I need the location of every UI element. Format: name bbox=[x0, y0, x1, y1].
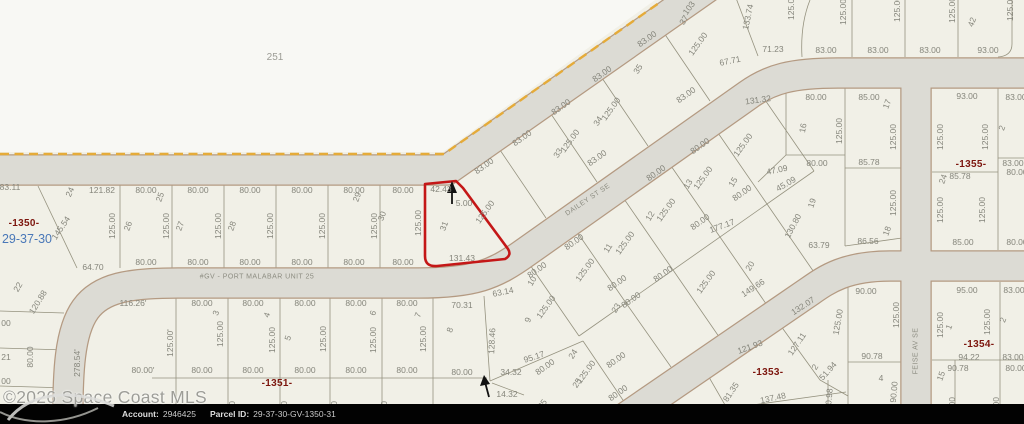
lot-number-label: 7 bbox=[413, 311, 423, 318]
dimension-label: 83.00 bbox=[1002, 353, 1023, 362]
dimension-label: 80.00 bbox=[135, 186, 156, 195]
dimension-label: 125.00 bbox=[889, 190, 898, 216]
dimension-label: 83.00 bbox=[1003, 286, 1024, 295]
dimension-label: 125.00 bbox=[732, 132, 754, 158]
dimension-label: 177.17 bbox=[708, 218, 735, 235]
lot-number-label: 24 bbox=[937, 173, 948, 185]
dimension-label: 127.11 bbox=[786, 331, 807, 357]
lot-number-label: 16 bbox=[798, 123, 808, 134]
dimension-label: 71.23 bbox=[762, 45, 783, 54]
dimension-label: 125.00 bbox=[981, 124, 990, 150]
dimension-label: 80.00 bbox=[563, 232, 585, 251]
dimension-label: 80.00 bbox=[291, 258, 312, 267]
dimension-label: 125.00 bbox=[839, 0, 848, 25]
dimension-label: 80.00 bbox=[689, 136, 711, 155]
lot-number-label: 27 bbox=[174, 220, 185, 232]
dimension-label: 80.00' bbox=[132, 366, 155, 375]
dimension-label: 85.00 bbox=[952, 238, 973, 247]
dimension-label: 80.00 bbox=[26, 346, 35, 367]
dimension-label: 67.71 bbox=[719, 55, 742, 68]
dimension-label: 83.00 bbox=[675, 85, 697, 104]
dimension-label: 80.00 bbox=[620, 290, 642, 309]
dimension-label: 83.11 bbox=[0, 183, 20, 192]
dimension-label: 80.00 bbox=[187, 258, 208, 267]
lot-number-label: 31 bbox=[438, 220, 449, 232]
dimension-label: 125.00 bbox=[832, 308, 845, 335]
lot-number-label: 24 bbox=[567, 348, 579, 361]
dimension-label: 278.54' bbox=[73, 349, 82, 377]
plat-map-viewer: 25183.11-1350-29-37-3024121.82145.54125.… bbox=[0, 0, 1024, 424]
dimension-label: 125.00 bbox=[948, 0, 957, 23]
dimension-label: 63.14 bbox=[492, 286, 515, 299]
area-label: 251 bbox=[267, 53, 284, 63]
dimension-label: 125.00 bbox=[474, 199, 496, 225]
dimension-label: 80.00 bbox=[242, 299, 263, 308]
parcel-id-value: 29-37-30-GV-1350-31 bbox=[253, 409, 336, 419]
dimension-label: 63.79 bbox=[808, 241, 829, 250]
lot-number-label: 4 bbox=[262, 311, 272, 318]
lot-number-label: 18 bbox=[881, 225, 892, 237]
dimension-label: 83.00 bbox=[867, 46, 888, 55]
dimension-label: 45.09 bbox=[775, 175, 798, 193]
lot-number-label: 4 bbox=[879, 374, 884, 383]
dimension-label: 125.00 bbox=[614, 230, 636, 256]
dimension-label: 80.00 bbox=[294, 299, 315, 308]
lot-number-label: 25 bbox=[154, 191, 165, 203]
lot-number-label: 2 bbox=[998, 316, 1008, 323]
dimension-label: 80.00 bbox=[396, 299, 417, 308]
dimension-label: 125.00 bbox=[414, 210, 423, 236]
dimension-label: 132.07 bbox=[790, 295, 816, 316]
lot-number-label: 15 bbox=[727, 176, 739, 189]
dimension-label: 80.00 bbox=[606, 273, 628, 292]
dimension-label: 90.78 bbox=[947, 364, 968, 373]
dimension-label: 83.00 bbox=[815, 46, 836, 55]
dimension-label: 125.00 bbox=[978, 197, 987, 223]
dimension-label: 90.78 bbox=[861, 352, 882, 361]
map-labels-layer: 25183.11-1350-29-37-3024121.82145.54125.… bbox=[0, 0, 1024, 424]
dimension-label: 131.43 bbox=[449, 254, 475, 263]
lot-number-label: 2 bbox=[810, 363, 820, 372]
dimension-label: 51.94 bbox=[818, 360, 839, 382]
dimension-label: 137.48 bbox=[759, 391, 786, 405]
lot-number-label: 15 bbox=[935, 370, 946, 382]
lot-number-label: 26 bbox=[122, 220, 133, 232]
dimension-label: 125.00 bbox=[268, 327, 277, 353]
dimension-label: 125.00 bbox=[835, 118, 844, 144]
dimension-label: 93.00 bbox=[956, 92, 977, 101]
dimension-label: 125.00 bbox=[787, 0, 796, 20]
dimension-label: 90.00 bbox=[889, 381, 899, 403]
dimension-label: 125.00 bbox=[319, 326, 328, 352]
dimension-label: 125.00 bbox=[574, 257, 596, 283]
dimension-label: 85.00 bbox=[858, 93, 879, 102]
lot-number-label: 11 bbox=[602, 242, 614, 254]
street-name-label: DAILEY ST SE bbox=[564, 182, 611, 217]
dimension-label: 125.00 bbox=[214, 213, 223, 239]
lot-number-label: 35 bbox=[632, 63, 644, 76]
dimension-label: 47.09 bbox=[766, 164, 789, 177]
lot-number-label: 5 bbox=[283, 334, 293, 341]
dimension-label: 80.00 bbox=[652, 264, 674, 283]
dimension-label: 80.00 bbox=[242, 366, 263, 375]
dimension-label: 85.78 bbox=[858, 158, 879, 167]
lot-number-label: 17 bbox=[881, 98, 892, 110]
lot-number-label: 9 bbox=[523, 316, 533, 323]
dimension-label: 83.00 bbox=[586, 148, 608, 167]
dimension-label: 80.00 bbox=[605, 350, 627, 369]
dimension-label: 83.00 bbox=[511, 128, 533, 147]
dimension-label: 149.66 bbox=[740, 277, 766, 298]
dimension-label: 125.00 bbox=[893, 0, 902, 22]
dimension-label: 80.00 bbox=[451, 368, 472, 377]
block-number-label: -1355- bbox=[956, 160, 987, 170]
dimension-label: 80.00 bbox=[805, 93, 826, 102]
lot-number-label: 1 bbox=[944, 323, 954, 330]
dimension-label: 80.00 bbox=[607, 383, 629, 402]
dimension-label: 83.00 bbox=[591, 64, 613, 83]
dimension-label: 83.00 bbox=[1005, 93, 1024, 102]
dimension-label: 125.00 bbox=[318, 213, 327, 239]
dimension-label: 125.00 bbox=[216, 321, 225, 347]
dimension-label: 125.00 bbox=[162, 213, 171, 239]
dimension-label: 125.00 bbox=[983, 309, 992, 335]
dimension-label: 34.32 bbox=[500, 368, 521, 377]
dimension-label: 80.00 bbox=[1005, 364, 1024, 373]
dimension-label: 80.00 bbox=[239, 186, 260, 195]
dimension-label: 125.00 bbox=[655, 197, 677, 223]
dimension-label: 80.00 bbox=[191, 366, 212, 375]
dimension-label: 80.00 bbox=[392, 258, 413, 267]
block-number-label: -1351- bbox=[262, 379, 293, 389]
dimension-label: 42.43 bbox=[430, 185, 451, 194]
parcel-id-label: Parcel ID: bbox=[210, 409, 249, 419]
lot-number-label: 8 bbox=[445, 326, 455, 333]
dimension-label: 125.00 bbox=[695, 269, 717, 295]
dimension-label: 64.70 bbox=[82, 263, 103, 272]
dimension-label: 80.00 bbox=[343, 258, 364, 267]
account-label: Account: bbox=[122, 409, 159, 419]
block-number-label: -1354- bbox=[964, 340, 995, 350]
lot-number-label: 22 bbox=[12, 281, 24, 293]
dimension-label: 14.32 bbox=[496, 390, 517, 399]
dimension-label: 80.00 bbox=[689, 212, 711, 231]
dimension-label: 125.00 bbox=[266, 213, 275, 239]
dimension-label: 80.00 bbox=[239, 258, 260, 267]
lot-number-label: 10 bbox=[526, 275, 538, 288]
dimension-label: 83.00 bbox=[636, 29, 658, 48]
dimension-label: 80.00 bbox=[294, 366, 315, 375]
dimension-label: 83.00 bbox=[550, 97, 572, 116]
lot-number-label: 2 bbox=[997, 124, 1007, 131]
dimension-label: 125.00 bbox=[936, 197, 945, 223]
dimension-label: 00 bbox=[1, 319, 10, 328]
dimension-label: 93.00 bbox=[977, 46, 998, 55]
lot-number-label: 19 bbox=[806, 197, 817, 209]
account-value: 2946425 bbox=[163, 409, 196, 419]
dimension-label: 80.00 bbox=[345, 366, 366, 375]
dimension-label: 90.00 bbox=[855, 287, 876, 296]
dimension-label: 128.46 bbox=[487, 328, 497, 354]
dimension-label: 133.74 bbox=[741, 3, 755, 30]
dimension-label: 95.00 bbox=[956, 286, 977, 295]
dimension-label: 130.80 bbox=[783, 213, 803, 240]
dimension-label: 80.00 bbox=[291, 186, 312, 195]
dimension-label: 125.00 bbox=[535, 294, 557, 320]
lot-number-label: 28 bbox=[226, 220, 237, 232]
dimension-label: 80.00 bbox=[645, 163, 667, 182]
dimension-label: 125.00 bbox=[687, 31, 709, 57]
lot-number-label: 6 bbox=[368, 309, 378, 316]
dimension-label: 131.32 bbox=[745, 94, 772, 106]
lot-number-label: 20 bbox=[744, 260, 756, 273]
dimension-label: 125.00' bbox=[166, 329, 175, 357]
dimension-label: 125.00 bbox=[892, 302, 901, 328]
dimension-label: 121.93 bbox=[736, 339, 763, 356]
dimension-label: 80.00 bbox=[135, 258, 156, 267]
mls-logo bbox=[0, 384, 120, 424]
dimension-label: 85.78 bbox=[949, 172, 970, 181]
lot-number-label: 42 bbox=[966, 16, 977, 28]
dimension-label: 80.00 bbox=[1006, 238, 1024, 247]
dimension-label: 125.00 bbox=[889, 124, 898, 150]
dimension-label: 121.82 bbox=[89, 186, 115, 195]
dimension-label: 86.56 bbox=[857, 237, 878, 246]
dimension-label: 125.00 bbox=[692, 165, 714, 191]
dimension-label: 83.00 bbox=[919, 46, 940, 55]
dimension-label: 81.35 bbox=[722, 381, 741, 403]
dimension-label: 125.00 bbox=[419, 326, 428, 352]
dimension-label: 80.00 bbox=[191, 299, 212, 308]
dimension-label: 83.00 bbox=[473, 156, 495, 175]
dimension-label: 125.00 bbox=[936, 124, 945, 150]
dimension-label: 5.00 bbox=[456, 199, 473, 208]
dimension-label: 125.00 bbox=[1006, 0, 1015, 21]
lot-number-label: 24 bbox=[64, 186, 76, 198]
block-number-label: -1350- bbox=[9, 219, 40, 229]
dimension-label: 80.00 bbox=[806, 159, 827, 168]
dimension-label: 80.00 bbox=[1006, 168, 1024, 177]
block-number-label: -1353- bbox=[753, 368, 784, 378]
section-number-label: 29-37-30 bbox=[2, 233, 52, 246]
street-name-label: FEISE AV SE bbox=[913, 328, 920, 375]
dimension-label: 70.31 bbox=[451, 301, 472, 310]
dimension-label: 125.00 bbox=[108, 213, 117, 239]
dimension-label: 21 bbox=[1, 353, 10, 362]
dimension-label: 94.22 bbox=[958, 353, 979, 362]
dimension-label: 80.00 bbox=[187, 186, 208, 195]
dimension-label: 125.00 bbox=[559, 128, 581, 154]
dimension-label: 116.26' bbox=[120, 299, 147, 308]
lot-number-label: 3 bbox=[211, 309, 221, 316]
dimension-label: 80.00 bbox=[396, 366, 417, 375]
dimension-label: 80.00 bbox=[345, 299, 366, 308]
dimension-label: 125.00 bbox=[369, 327, 378, 353]
street-name-label: #GV - PORT MALABAR UNIT 25 bbox=[200, 274, 314, 281]
dimension-label: 145.54 bbox=[50, 215, 72, 241]
dimension-label: 120.88 bbox=[28, 289, 49, 316]
dimension-label: 125.00 bbox=[600, 96, 622, 122]
dimension-label: 80.00 bbox=[392, 186, 413, 195]
lot-number-label: 29 bbox=[351, 191, 362, 203]
